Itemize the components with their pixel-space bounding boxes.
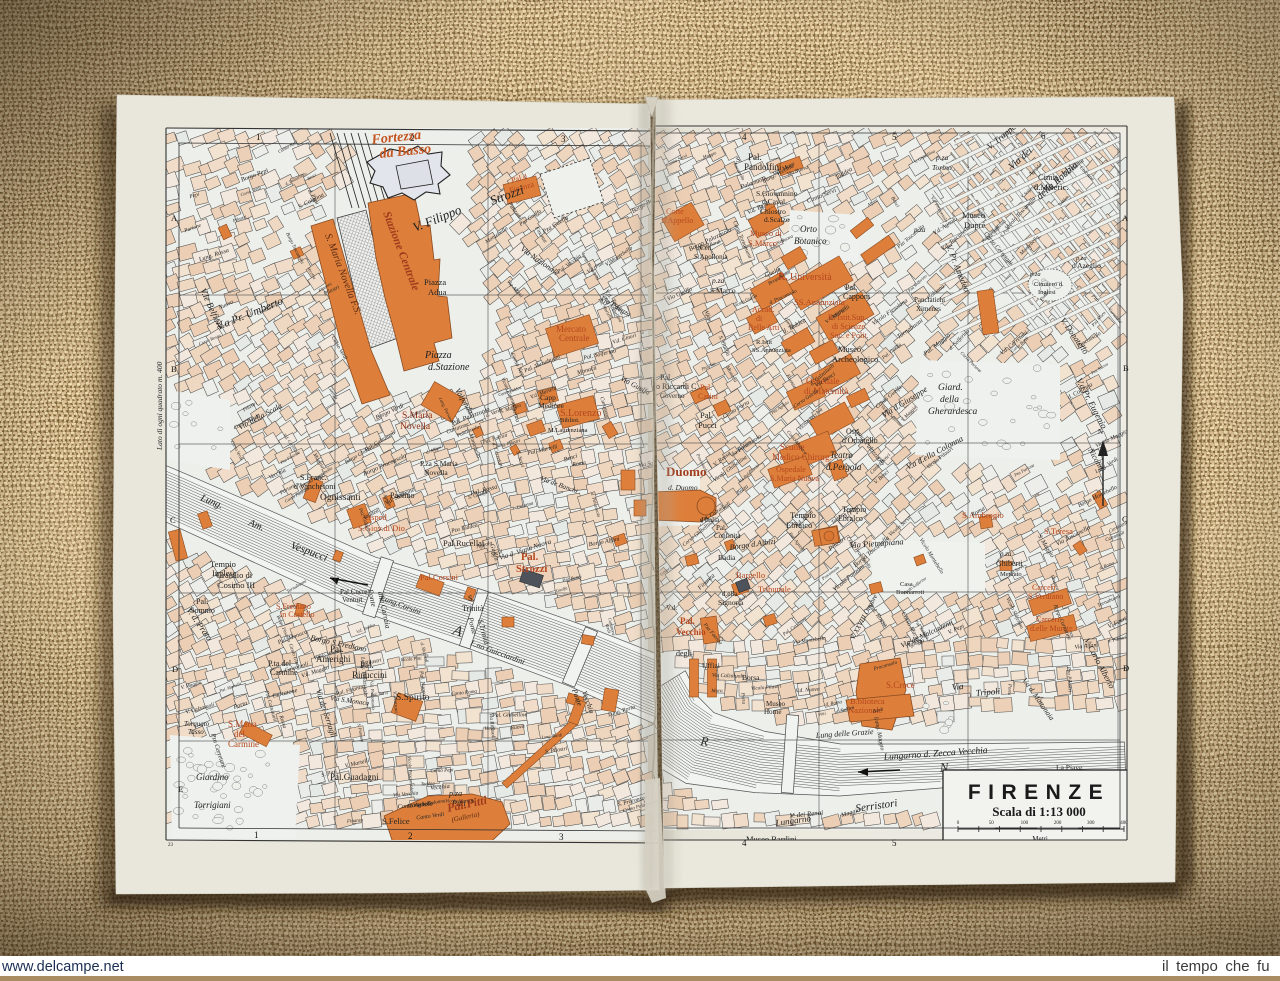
svg-text:il tempo che fu: il tempo che fu xyxy=(1162,958,1270,975)
svg-text:del: del xyxy=(234,729,245,739)
svg-text:Pal.Corsini: Pal.Corsini xyxy=(420,572,459,582)
svg-text:Pucci: Pucci xyxy=(698,420,718,430)
svg-text:300: 300 xyxy=(1087,821,1095,826)
svg-text:in Castello: in Castello xyxy=(280,610,314,619)
svg-text:Teatro: Teatro xyxy=(830,450,853,460)
svg-text:Novella: Novella xyxy=(424,468,448,477)
svg-text:P.za S.Maria: P.za S.Maria xyxy=(420,459,458,468)
svg-text:Horne: Horne xyxy=(764,708,782,716)
svg-text:Pal. Ghibellina: Pal. Ghibellina xyxy=(491,712,527,719)
svg-text:Rinuccini: Rinuccini xyxy=(352,670,387,680)
svg-text:Centrale: Centrale xyxy=(559,333,590,343)
svg-text:d.ella: d.ella xyxy=(722,590,738,598)
svg-text:Pal.: Pal. xyxy=(748,152,762,162)
svg-text:della: della xyxy=(940,395,959,405)
svg-text:d.Pergola: d.Pergola xyxy=(826,462,862,472)
svg-text:Verdi: Verdi xyxy=(484,726,496,732)
svg-text:Porta: Porta xyxy=(739,692,745,705)
svg-text:2: 2 xyxy=(410,133,415,143)
svg-text:Tribunale: Tribunale xyxy=(758,584,791,594)
svg-text:1: 1 xyxy=(254,830,259,840)
svg-text:Ximenes: Ximenes xyxy=(916,305,941,313)
svg-text:Torrigiani: Torrigiani xyxy=(194,800,231,810)
svg-text:S.: S. xyxy=(468,594,474,603)
svg-text:Confinita: Confinita xyxy=(714,532,741,540)
svg-text:Torquato: Torquato xyxy=(184,720,210,728)
svg-text:S.Marco: S.Marco xyxy=(710,286,736,295)
svg-text:Pal.Cncre: Pal.Cncre xyxy=(340,588,367,596)
svg-text:Carmine: Carmine xyxy=(228,739,259,749)
svg-text:Torino: Torino xyxy=(932,163,952,172)
svg-text:Soc. e Polit.: Soc. e Polit. xyxy=(830,331,869,340)
svg-text:Uffizi: Uffizi xyxy=(702,661,720,670)
svg-text:Università: Università xyxy=(790,272,832,283)
svg-text:Strozzi: Strozzi xyxy=(516,564,547,575)
svg-text:S.Verdiano: S.Verdiano xyxy=(1028,592,1063,601)
svg-text:Ospedale: Ospedale xyxy=(776,465,806,474)
svg-text:R.Istit: R.Istit xyxy=(756,339,772,346)
svg-text:M.Laurenziana: M.Laurenziana xyxy=(548,427,588,434)
svg-text:Piazza: Piazza xyxy=(424,350,452,361)
svg-text:Tasso: Tasso xyxy=(188,728,204,736)
svg-text:Trinità: Trinità xyxy=(462,604,484,613)
svg-text:Granaio di: Granaio di xyxy=(216,570,253,580)
svg-text:100: 100 xyxy=(1021,821,1029,826)
svg-text:Botanico: Botanico xyxy=(794,236,827,246)
svg-text:Medicee: Medicee xyxy=(538,401,564,410)
svg-text:23: 23 xyxy=(168,843,174,848)
svg-text:Bargello: Bargello xyxy=(736,570,765,580)
svg-text:Museo di: Museo di xyxy=(750,228,783,238)
svg-text:Pal.Guadagni: Pal.Guadagni xyxy=(330,772,379,782)
svg-text:degli: degli xyxy=(676,649,693,658)
svg-text:1: 1 xyxy=(256,132,261,142)
svg-text:D: D xyxy=(1123,663,1129,673)
svg-text:Cosimo III: Cosimo III xyxy=(218,580,255,590)
svg-text:p.za: p.za xyxy=(711,276,725,285)
svg-text:Piazza: Piazza xyxy=(424,277,446,287)
svg-text:di: di xyxy=(756,314,763,323)
svg-text:Bibliot.: Bibliot. xyxy=(560,417,580,424)
svg-text:Badia: Badia xyxy=(718,553,736,562)
svg-text:p.za: p.za xyxy=(1029,271,1041,278)
svg-text:Belle Arti: Belle Arti xyxy=(748,323,780,332)
svg-text:SS.Annunziata: SS.Annunziata xyxy=(794,297,845,307)
svg-text:Pal.: Pal. xyxy=(680,616,695,626)
svg-text:Via Calzaiuoli: Via Calzaiuoli xyxy=(712,673,744,680)
svg-text:Scala di 1:13 000: Scala di 1:13 000 xyxy=(992,804,1086,819)
svg-text:D: D xyxy=(172,664,178,674)
svg-text:N: N xyxy=(1098,428,1103,436)
svg-text:Pal.: Pal. xyxy=(700,383,712,392)
svg-text:p.za: p.za xyxy=(999,550,1012,558)
svg-text:Pal.: Pal. xyxy=(196,597,208,606)
svg-text:3: 3 xyxy=(561,134,566,144)
svg-text:S.Croce: S.Croce xyxy=(886,680,915,690)
svg-text:Venturi: Venturi xyxy=(342,596,363,604)
svg-text:Giard.: Giard. xyxy=(938,383,963,393)
svg-text:Via: Via xyxy=(951,681,964,692)
svg-text:A: A xyxy=(171,213,178,223)
svg-text:Cimitero d.: Cimitero d. xyxy=(1034,281,1064,288)
svg-text:B: B xyxy=(171,364,177,374)
svg-text:A: A xyxy=(1122,213,1129,223)
svg-text:C: C xyxy=(170,515,176,525)
svg-text:3: 3 xyxy=(559,832,564,842)
svg-text:p.za: p.za xyxy=(448,789,462,798)
svg-text:Borsa: Borsa xyxy=(742,673,760,682)
svg-text:Canto Pepi: Canto Pepi xyxy=(430,767,454,774)
svg-text:4: 4 xyxy=(742,132,747,142)
svg-text:S.Maria Nuova: S.Maria Nuova xyxy=(770,474,819,483)
svg-text:Pal.: Pal. xyxy=(845,283,857,292)
svg-text:50: 50 xyxy=(989,821,995,826)
svg-text:Vecchio: Vecchio xyxy=(676,627,706,637)
svg-text:S.Apollonia: S.Apollonia xyxy=(694,253,729,261)
svg-text:S.Maria: S.Maria xyxy=(228,719,257,729)
svg-text:d'Azeglio: d'Azeglio xyxy=(1072,261,1101,270)
svg-text:E: E xyxy=(178,784,183,794)
svg-text:di Scienze: di Scienze xyxy=(832,322,866,331)
svg-text:d.Stazione: d.Stazione xyxy=(428,362,470,373)
svg-text:2: 2 xyxy=(408,831,413,841)
svg-text:Accad.: Accad. xyxy=(752,305,774,314)
svg-text:p.za: p.za xyxy=(935,153,949,162)
svg-text:Pal.: Pal. xyxy=(716,524,727,532)
svg-text:Museo: Museo xyxy=(838,344,861,354)
svg-text:Carini: Carini xyxy=(698,392,719,401)
svg-text:Ognissanti: Ognissanti xyxy=(320,493,361,503)
svg-text:5: 5 xyxy=(892,132,897,142)
svg-text:B: B xyxy=(1123,363,1129,373)
svg-text:5: 5 xyxy=(892,838,897,848)
svg-text:200: 200 xyxy=(1054,821,1062,826)
svg-text:Giardino: Giardino xyxy=(196,772,229,782)
svg-text:Capponi: Capponi xyxy=(843,292,871,301)
svg-text:SS.Annunziata: SS.Annunziata xyxy=(752,347,791,354)
svg-text:Adua: Adua xyxy=(428,287,447,297)
svg-text:Moro: Moro xyxy=(710,688,723,694)
svg-text:Vicolo Martelli: Vicolo Martelli xyxy=(445,799,475,804)
svg-text:Archeologico: Archeologico xyxy=(832,354,878,364)
svg-text:FIRENZE: FIRENZE xyxy=(968,781,1110,804)
svg-text:www.delcampe.net: www.delcampe.net xyxy=(1,959,124,975)
svg-text:Orto: Orto xyxy=(800,224,818,234)
svg-text:4: 4 xyxy=(742,838,747,848)
svg-text:Museo: Museo xyxy=(766,700,786,708)
svg-text:Lato di ogni quadrato m. 400: Lato di ogni quadrato m. 400 xyxy=(155,361,164,451)
svg-text:d.Scalzo: d.Scalzo xyxy=(764,215,790,224)
svg-text:S.Felice: S.Felice xyxy=(382,816,410,826)
svg-text:Gherardesca: Gherardesca xyxy=(928,407,977,417)
svg-text:Porta: Porta xyxy=(1006,683,1012,696)
svg-text:Novella: Novella xyxy=(400,422,431,432)
svg-text:C: C xyxy=(1122,514,1128,524)
svg-text:6: 6 xyxy=(1041,131,1046,141)
svg-text:Pal.: Pal. xyxy=(700,410,713,420)
